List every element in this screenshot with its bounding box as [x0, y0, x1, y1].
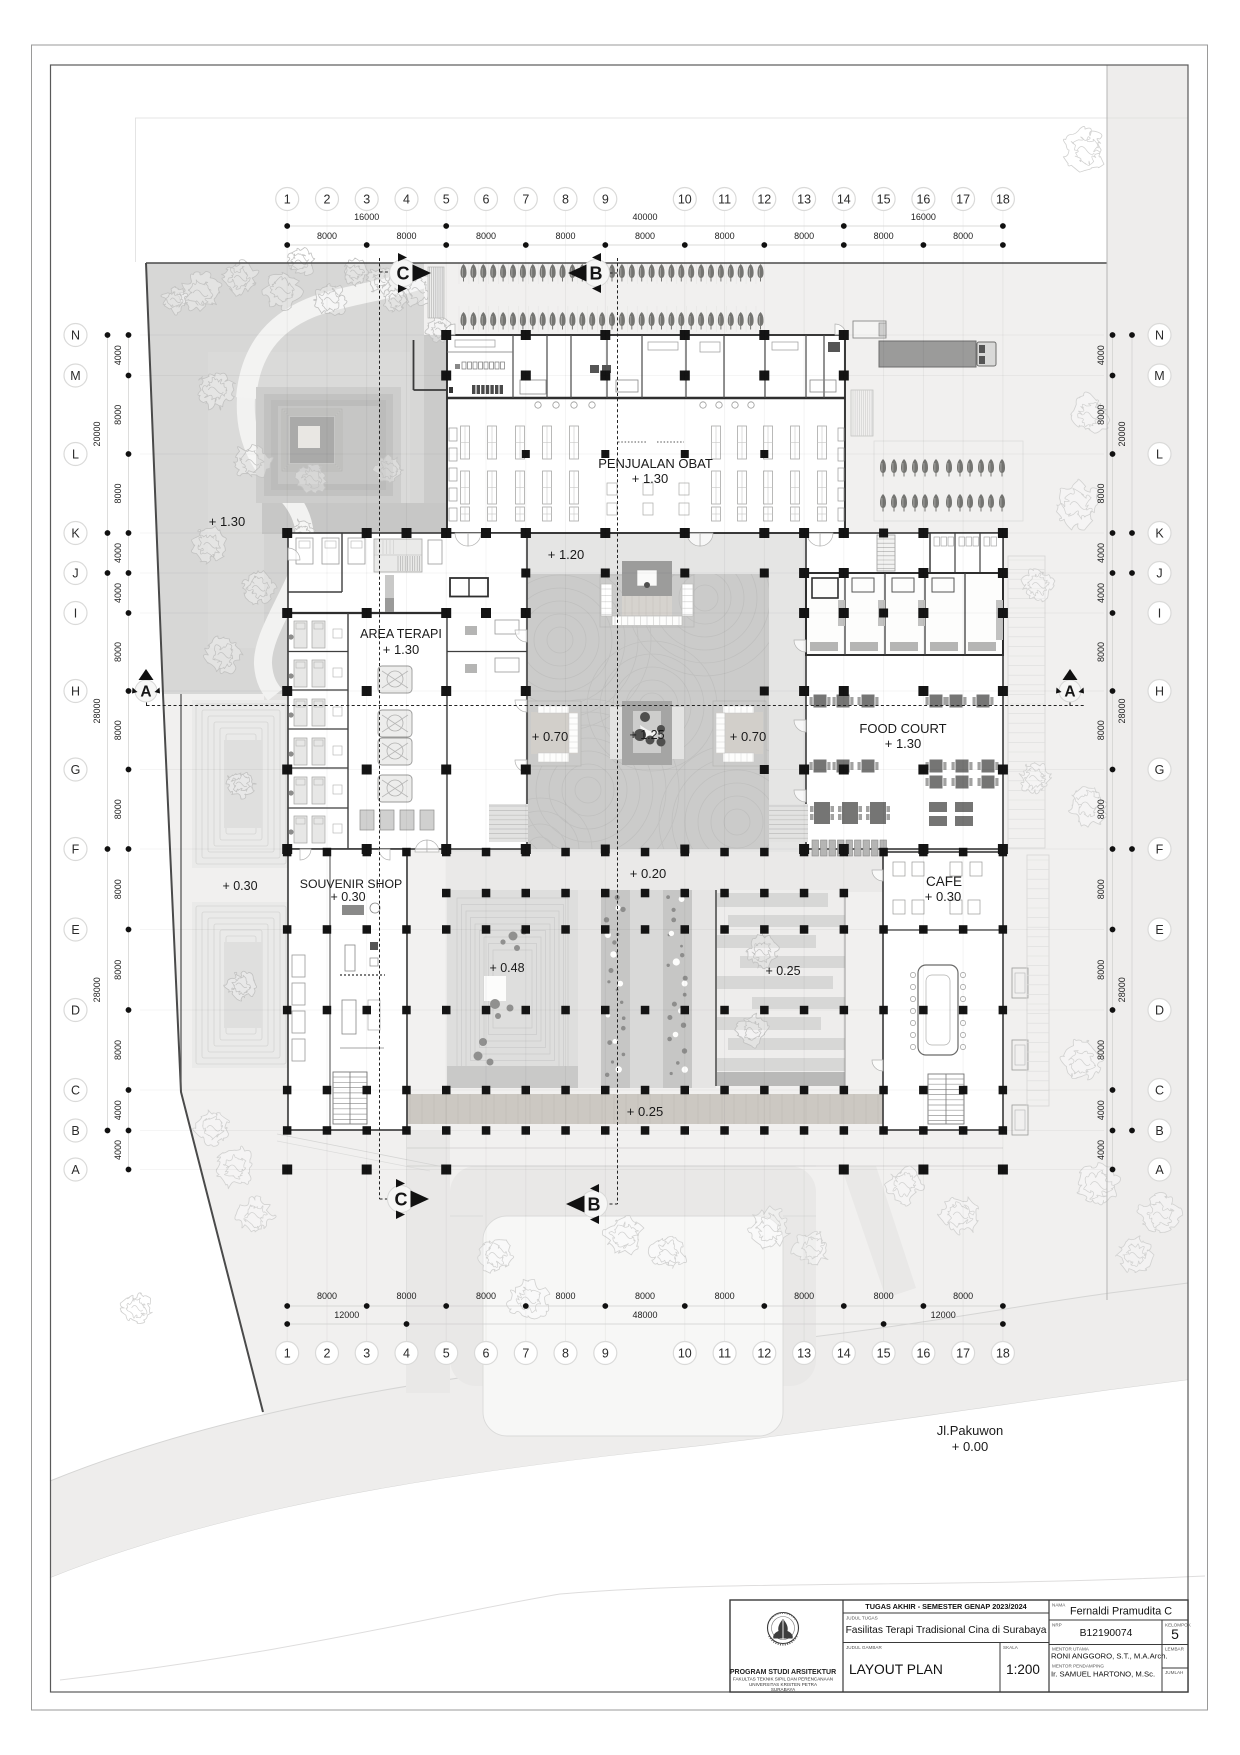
svg-text:+ 1.30: + 1.30 [209, 514, 246, 529]
svg-text:1:200: 1:200 [1006, 1662, 1040, 1677]
svg-text:+ 1.25: + 1.25 [629, 728, 664, 742]
svg-text:Fasilitas Terapi Tradisional C: Fasilitas Terapi Tradisional Cina di Sur… [846, 1625, 1047, 1636]
svg-text:8000: 8000 [113, 879, 123, 899]
svg-text:12000: 12000 [931, 1310, 956, 1320]
svg-text:8: 8 [562, 193, 569, 207]
svg-text:8000: 8000 [794, 1291, 814, 1301]
svg-text:F: F [1156, 843, 1164, 857]
svg-text:K: K [1155, 527, 1164, 541]
svg-text:14: 14 [837, 1347, 851, 1361]
svg-text:28000: 28000 [92, 977, 102, 1002]
svg-text:N: N [71, 329, 80, 343]
svg-text:7: 7 [522, 1347, 529, 1361]
svg-text:+ 0.25: + 0.25 [765, 964, 800, 978]
svg-text:28000: 28000 [1117, 698, 1127, 723]
svg-text:NRP: NRP [1052, 1623, 1062, 1628]
svg-text:J: J [1156, 567, 1162, 581]
svg-text:8000: 8000 [113, 483, 123, 503]
svg-text:8000: 8000 [113, 1040, 123, 1060]
svg-text:8000: 8000 [794, 231, 814, 241]
svg-text:8000: 8000 [635, 1291, 655, 1301]
svg-text:8000: 8000 [1096, 879, 1106, 899]
svg-text:F: F [72, 843, 80, 857]
svg-text:NAMA: NAMA [1052, 1603, 1066, 1608]
svg-text:E: E [71, 923, 79, 937]
svg-text:SKALA: SKALA [1003, 1645, 1019, 1650]
svg-text:7: 7 [522, 193, 529, 207]
svg-text:8000: 8000 [715, 231, 735, 241]
svg-text:10: 10 [678, 193, 692, 207]
svg-text:4000: 4000 [1096, 1100, 1106, 1120]
svg-text:1: 1 [284, 193, 291, 207]
svg-text:LEMBAR: LEMBAR [1165, 1647, 1185, 1652]
svg-text:8000: 8000 [113, 642, 123, 662]
svg-text:+ 0.70: + 0.70 [532, 729, 569, 744]
svg-text:FOOD COURT: FOOD COURT [859, 721, 946, 736]
svg-text:+ 0.70: + 0.70 [730, 729, 767, 744]
svg-text:AREA TERAPI: AREA TERAPI [360, 627, 442, 641]
svg-text:10: 10 [678, 1347, 692, 1361]
svg-text:14: 14 [837, 193, 851, 207]
svg-text:8000: 8000 [113, 720, 123, 740]
svg-text:8000: 8000 [1096, 960, 1106, 980]
svg-text:8000: 8000 [1096, 1040, 1106, 1060]
svg-text:16000: 16000 [354, 212, 379, 222]
svg-text:8000: 8000 [555, 231, 575, 241]
svg-text:M: M [1154, 369, 1164, 383]
svg-text:FAKULTAS TEKNIK SIPIL DAN PERE: FAKULTAS TEKNIK SIPIL DAN PERENCANAAN [733, 1677, 833, 1682]
svg-text:20000: 20000 [1117, 421, 1127, 446]
svg-text:G: G [71, 763, 81, 777]
svg-text:4000: 4000 [113, 583, 123, 603]
svg-text:8000: 8000 [113, 960, 123, 980]
svg-text:H: H [1155, 685, 1164, 699]
svg-text:Ir. SAMUEL HARTONO, M.Sc.: Ir. SAMUEL HARTONO, M.Sc. [1051, 1670, 1155, 1679]
svg-text:+ 0.25: + 0.25 [627, 1104, 664, 1119]
svg-text:PROGRAM STUDI ARSITEKTUR: PROGRAM STUDI ARSITEKTUR [730, 1669, 836, 1676]
svg-text:5: 5 [1171, 1626, 1179, 1642]
svg-text:16000: 16000 [911, 212, 936, 222]
svg-text:2: 2 [324, 1347, 331, 1361]
svg-text:16: 16 [916, 193, 930, 207]
svg-text:8000: 8000 [715, 1291, 735, 1301]
svg-text:PENJUALAN OBAT: PENJUALAN OBAT [598, 456, 713, 471]
svg-text:B12190074: B12190074 [1080, 1628, 1133, 1639]
svg-text:8000: 8000 [113, 799, 123, 819]
svg-text:B: B [71, 1124, 79, 1138]
svg-text:+ 0.30: + 0.30 [222, 879, 257, 893]
svg-text:+ 0.48: + 0.48 [489, 961, 524, 975]
svg-text:+ 1.30: + 1.30 [885, 736, 922, 751]
svg-text:8000: 8000 [476, 231, 496, 241]
svg-text:8000: 8000 [1096, 405, 1106, 425]
svg-text:RONI ANGGORO, S.T., M.A.Arch.: RONI ANGGORO, S.T., M.A.Arch. [1051, 1652, 1168, 1661]
svg-text:12: 12 [757, 1347, 771, 1361]
svg-text:8000: 8000 [396, 1291, 416, 1301]
svg-text:8000: 8000 [874, 1291, 894, 1301]
svg-text:4000: 4000 [1096, 583, 1106, 603]
svg-text:JUDUL TUGAS: JUDUL TUGAS [846, 1616, 878, 1621]
svg-text:4000: 4000 [113, 345, 123, 365]
svg-text:4000: 4000 [113, 1140, 123, 1160]
svg-text:8000: 8000 [635, 231, 655, 241]
svg-text:2: 2 [324, 193, 331, 207]
svg-text:+ 0.20: + 0.20 [630, 866, 667, 881]
svg-text:4000: 4000 [113, 1100, 123, 1120]
svg-text:A: A [1064, 684, 1075, 701]
svg-text:N: N [1155, 329, 1164, 343]
svg-text:18: 18 [996, 1347, 1010, 1361]
svg-text:MENTOR PENDAMPING: MENTOR PENDAMPING [1052, 1664, 1104, 1669]
svg-text:4000: 4000 [1096, 1140, 1106, 1160]
svg-text:SURABAYA: SURABAYA [771, 1687, 796, 1692]
svg-text:4000: 4000 [1096, 345, 1106, 365]
svg-text:11: 11 [718, 1347, 731, 1361]
svg-text:18: 18 [996, 193, 1010, 207]
svg-text:+ 1.30: + 1.30 [632, 471, 669, 486]
svg-text:8000: 8000 [874, 231, 894, 241]
svg-text:11: 11 [718, 193, 731, 207]
svg-text:13: 13 [797, 1347, 811, 1361]
svg-text:D: D [1155, 1004, 1164, 1018]
svg-text:J: J [72, 567, 78, 581]
svg-text:A: A [1155, 1163, 1164, 1177]
svg-text:JUMLAH: JUMLAH [1165, 1670, 1183, 1675]
svg-text:4: 4 [403, 1347, 410, 1361]
svg-text:4000: 4000 [1096, 543, 1106, 563]
svg-text:C: C [397, 264, 410, 284]
svg-text:H: H [71, 685, 80, 699]
svg-text:4: 4 [403, 193, 410, 207]
svg-text:C: C [1155, 1084, 1164, 1098]
svg-text:17: 17 [956, 193, 970, 207]
svg-text:8000: 8000 [396, 231, 416, 241]
svg-text:8000: 8000 [1096, 799, 1106, 819]
svg-text:A: A [140, 684, 151, 701]
svg-text:12000: 12000 [334, 1310, 359, 1320]
svg-text:D: D [71, 1004, 80, 1018]
svg-text:C: C [71, 1084, 80, 1098]
svg-text:JUDUL GAMBAR: JUDUL GAMBAR [846, 1645, 883, 1650]
svg-text:B: B [588, 1195, 601, 1215]
svg-text:+ 1.20: + 1.20 [548, 547, 585, 562]
svg-text:Fernaldi Pramudita C: Fernaldi Pramudita C [1070, 1606, 1172, 1618]
svg-text:17: 17 [956, 1347, 970, 1361]
svg-text:M: M [70, 369, 80, 383]
svg-text:40000: 40000 [632, 212, 657, 222]
svg-text:4000: 4000 [113, 543, 123, 563]
svg-text:8000: 8000 [953, 231, 973, 241]
svg-text:I: I [1158, 607, 1161, 621]
svg-text:48000: 48000 [632, 1310, 657, 1320]
svg-text:+ 0.30: + 0.30 [330, 890, 365, 904]
svg-text:28000: 28000 [92, 698, 102, 723]
svg-text:K: K [71, 527, 80, 541]
svg-text:9: 9 [602, 193, 609, 207]
svg-text:3: 3 [363, 193, 370, 207]
svg-text:SOUVENIR SHOP: SOUVENIR SHOP [300, 877, 403, 891]
svg-text:8000: 8000 [317, 1291, 337, 1301]
svg-text:13: 13 [797, 193, 811, 207]
svg-text:8000: 8000 [113, 405, 123, 425]
svg-text:6: 6 [483, 1347, 490, 1361]
svg-text:8000: 8000 [1096, 720, 1106, 740]
svg-text:C: C [395, 1190, 408, 1210]
svg-text:5: 5 [443, 193, 450, 207]
svg-text:TUGAS AKHIR - SEMESTER GENAP 2: TUGAS AKHIR - SEMESTER GENAP 2023/2024 [865, 1602, 1027, 1611]
svg-text:5: 5 [443, 1347, 450, 1361]
svg-text:6: 6 [483, 193, 490, 207]
svg-text:B: B [1155, 1124, 1163, 1138]
svg-text:8000: 8000 [953, 1291, 973, 1301]
svg-text:E: E [1155, 923, 1163, 937]
svg-text:1: 1 [284, 1347, 291, 1361]
svg-text:12: 12 [757, 193, 771, 207]
svg-text:+ 1.30: + 1.30 [383, 642, 420, 657]
svg-text:8000: 8000 [317, 231, 337, 241]
svg-text:Jl.Pakuwon: Jl.Pakuwon [937, 1423, 1003, 1438]
svg-text:8: 8 [562, 1347, 569, 1361]
svg-text:8000: 8000 [476, 1291, 496, 1301]
svg-text:B: B [590, 264, 603, 284]
svg-text:8000: 8000 [555, 1291, 575, 1301]
svg-text:L: L [72, 448, 79, 462]
svg-text:CAFE: CAFE [926, 874, 962, 889]
svg-text:28000: 28000 [1117, 977, 1127, 1002]
svg-text:16: 16 [916, 1347, 930, 1361]
svg-text:8000: 8000 [1096, 483, 1106, 503]
svg-text:I: I [74, 607, 77, 621]
svg-text:3: 3 [363, 1347, 370, 1361]
svg-text:9: 9 [602, 1347, 609, 1361]
svg-text:15: 15 [877, 193, 891, 207]
svg-text:A: A [71, 1163, 80, 1177]
svg-text:+ 0.00: + 0.00 [952, 1439, 989, 1454]
svg-text:L: L [1156, 448, 1163, 462]
svg-text:G: G [1155, 763, 1165, 777]
svg-text:20000: 20000 [92, 421, 102, 446]
svg-text:15: 15 [877, 1347, 891, 1361]
svg-text:8000: 8000 [1096, 642, 1106, 662]
svg-text:+ 0.30: + 0.30 [925, 889, 962, 904]
svg-text:LAYOUT PLAN: LAYOUT PLAN [849, 1662, 943, 1677]
